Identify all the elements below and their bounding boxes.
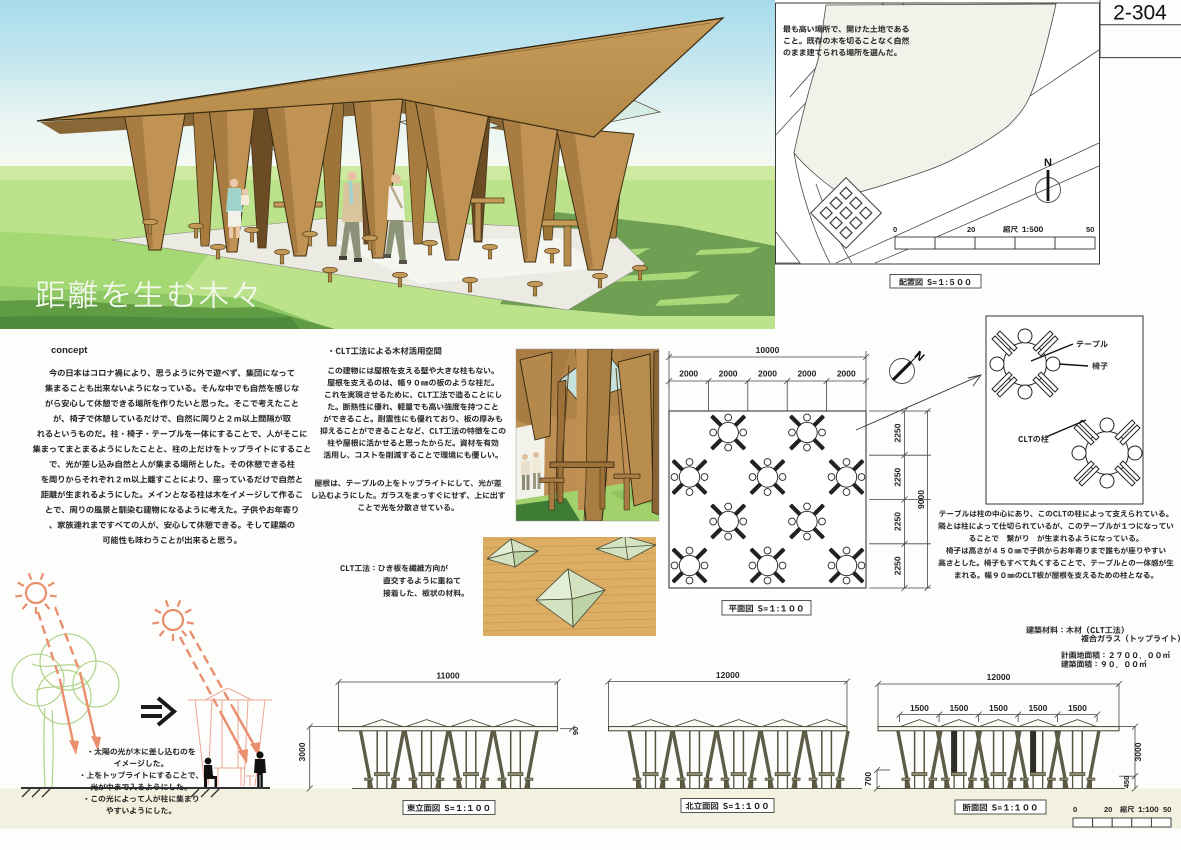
svg-text:1500: 1500	[949, 703, 968, 713]
svg-text:90: 90	[571, 727, 580, 735]
svg-text:0: 0	[1073, 805, 1077, 814]
svg-text:12000: 12000	[716, 670, 740, 680]
svg-text:2250: 2250	[893, 556, 903, 575]
svg-text:450: 450	[1122, 776, 1131, 789]
svg-text:50: 50	[1086, 225, 1094, 234]
svg-text:1500: 1500	[1028, 703, 1047, 713]
svg-text:11000: 11000	[436, 671, 459, 681]
svg-text:2250: 2250	[893, 512, 903, 531]
svg-text:2000: 2000	[758, 369, 777, 379]
svg-text:2000: 2000	[719, 369, 738, 379]
svg-text:2250: 2250	[893, 467, 903, 486]
svg-text:10000: 10000	[756, 345, 780, 355]
svg-text:20: 20	[967, 225, 975, 234]
svg-text:12000: 12000	[987, 672, 1011, 682]
svg-text:700: 700	[863, 772, 873, 786]
svg-text:N: N	[1044, 157, 1052, 169]
svg-text:2000: 2000	[837, 369, 856, 379]
svg-text:1500: 1500	[910, 703, 929, 713]
svg-text:2000: 2000	[797, 369, 816, 379]
svg-text:20: 20	[1104, 805, 1112, 814]
svg-text:50: 50	[1163, 805, 1171, 814]
svg-text:1500: 1500	[1068, 703, 1087, 713]
svg-text:0: 0	[893, 225, 897, 234]
svg-text:N: N	[912, 348, 928, 364]
svg-text:2-304: 2-304	[1113, 2, 1167, 25]
svg-text:3000: 3000	[297, 742, 307, 761]
svg-text:2000: 2000	[679, 369, 698, 379]
svg-text:1500: 1500	[989, 703, 1008, 713]
svg-text:9000: 9000	[916, 490, 926, 509]
svg-text:2250: 2250	[893, 423, 903, 442]
svg-text:concept: concept	[51, 345, 88, 356]
svg-text:3000: 3000	[1133, 742, 1143, 761]
